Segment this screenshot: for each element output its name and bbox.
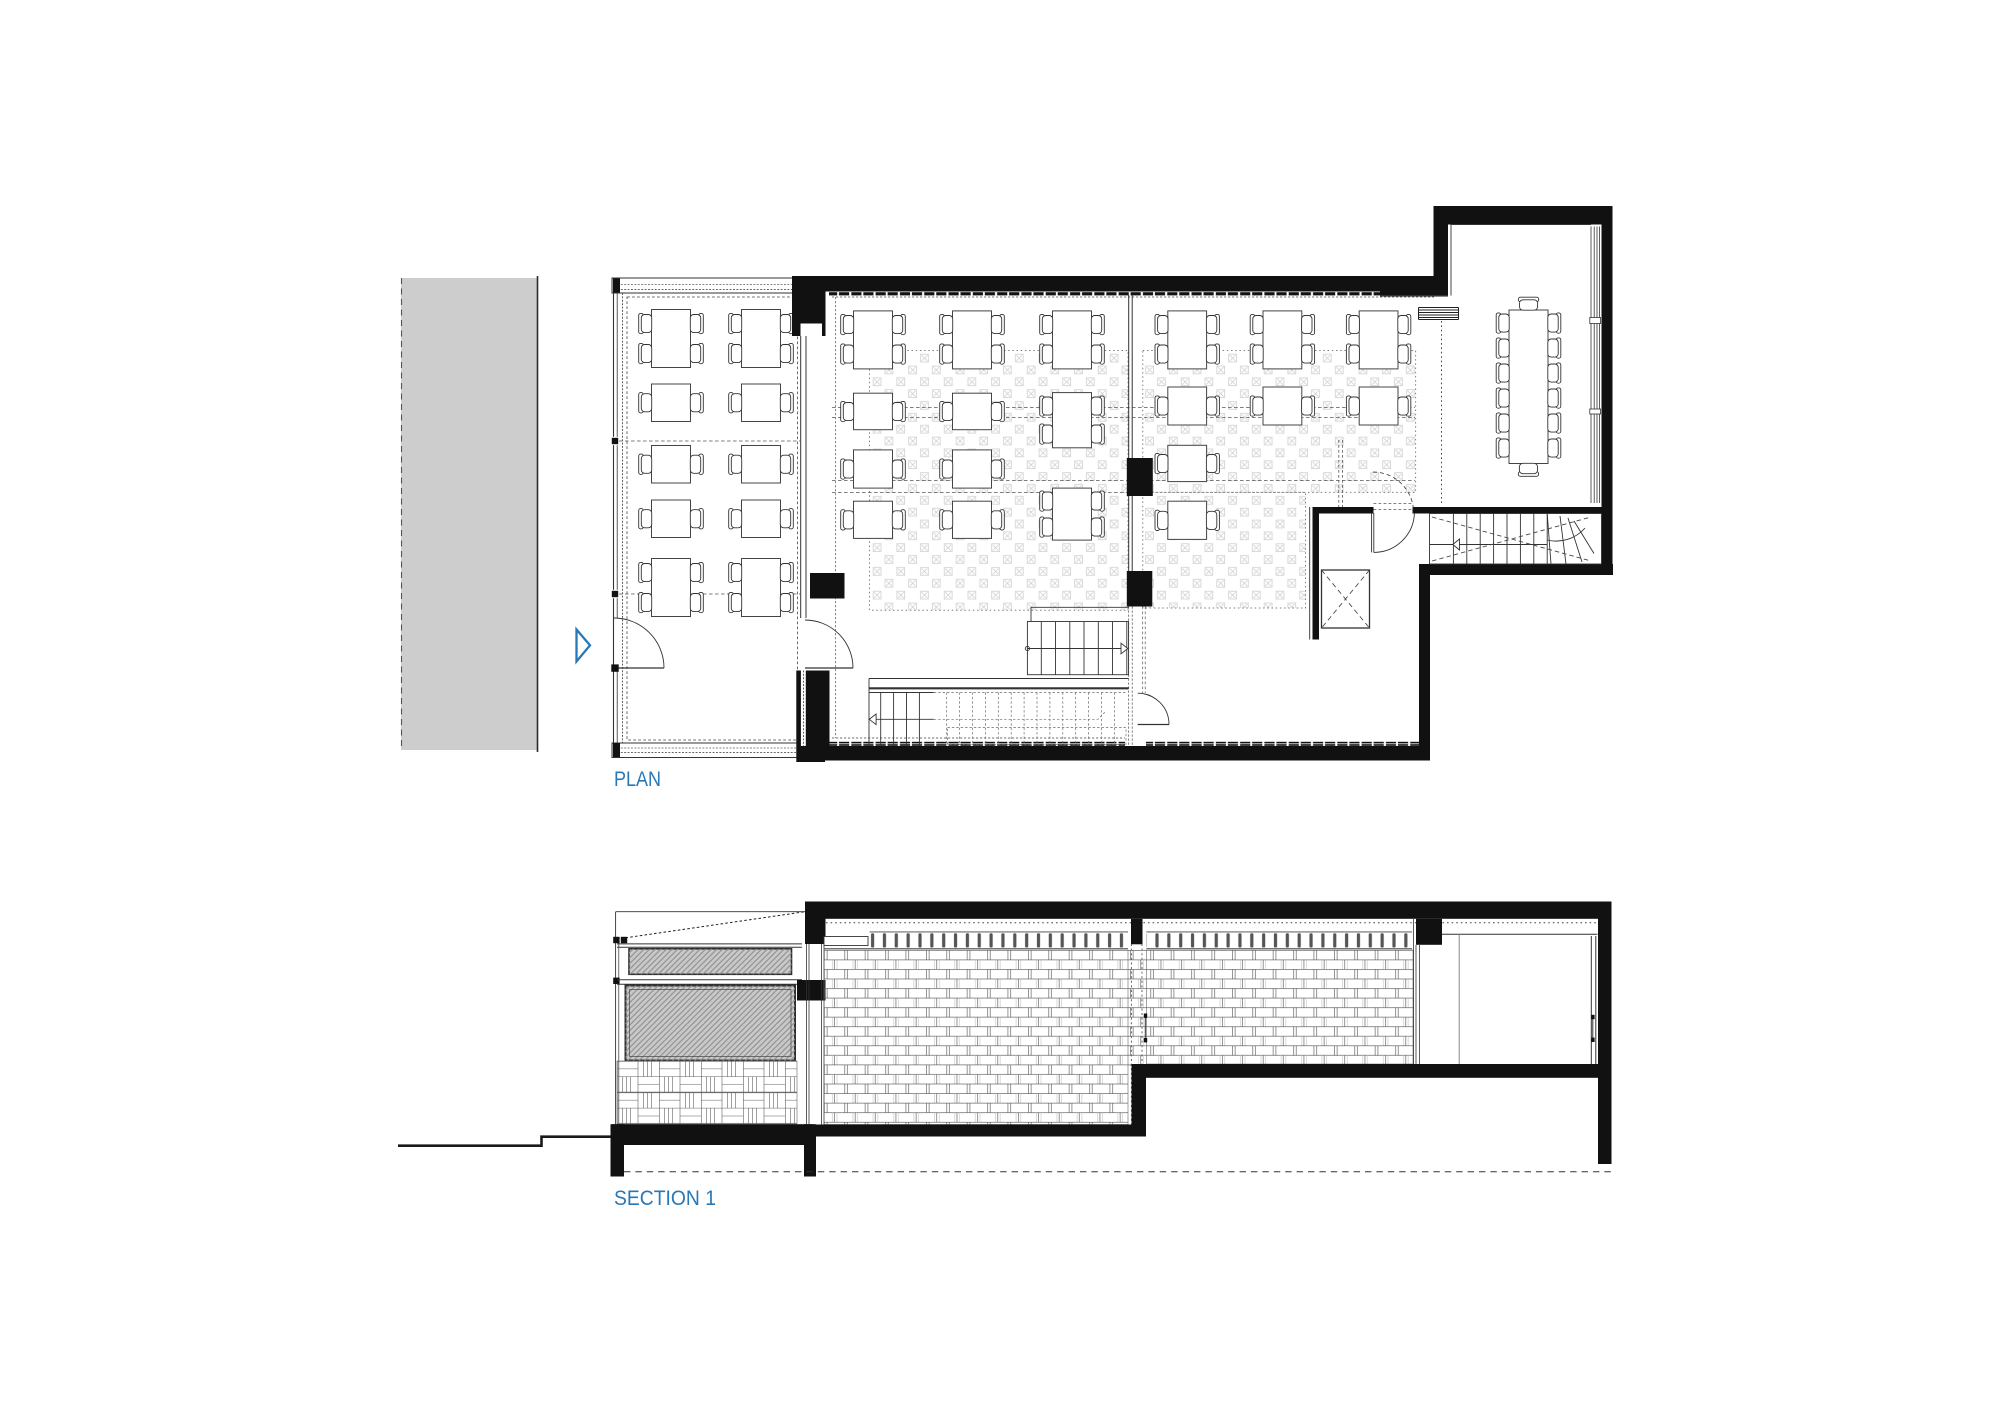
svg-text:PLAN: PLAN [614,768,661,791]
svg-text:SECTION 1: SECTION 1 [614,1187,716,1210]
